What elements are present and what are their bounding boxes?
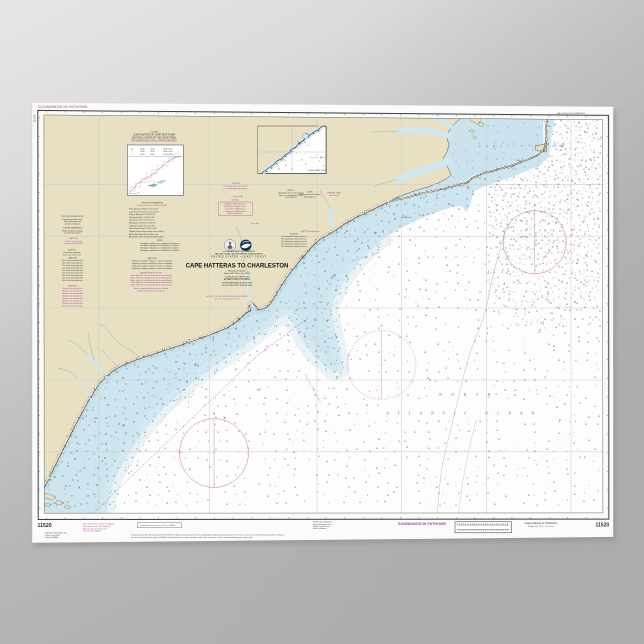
svg-text:38: 38 (378, 473, 380, 475)
svg-text:28: 28 (587, 202, 589, 204)
svg-text:10: 10 (596, 338, 598, 340)
svg-text:22: 22 (398, 441, 400, 443)
svg-text:27: 27 (353, 478, 355, 480)
svg-text:3: 3 (579, 271, 580, 273)
svg-text:North Santee Bay 4.4 4.8 0.: North Santee Bay 4.4 4.8 0.4 0.0 (129, 227, 157, 230)
svg-text:8: 8 (378, 317, 379, 319)
svg-text:9: 9 (552, 292, 553, 294)
svg-text:5: 5 (458, 361, 459, 363)
svg-text:60: 60 (584, 307, 586, 309)
svg-text:6: 6 (537, 394, 538, 396)
svg-text:50: 50 (544, 236, 546, 238)
svg-text:54: 54 (548, 473, 550, 475)
svg-text:5: 5 (335, 432, 336, 434)
svg-text:40: 40 (515, 241, 517, 243)
svg-text:44: 44 (117, 494, 119, 496)
svg-text:60: 60 (394, 465, 396, 467)
svg-text:63: 63 (206, 460, 208, 462)
svg-text:POLLUTION REPORTS: POLLUTION REPORTS (62, 216, 84, 218)
svg-text:53: 53 (531, 264, 533, 266)
svg-text:43: 43 (226, 461, 228, 463)
svg-text:14: 14 (296, 495, 298, 497)
svg-text:4: 4 (465, 290, 466, 292)
svg-text:UNITED STATES — EAST COAST: UNITED STATES — EAST COAST (211, 256, 267, 259)
svg-text:56: 56 (287, 350, 289, 352)
svg-text:51: 51 (189, 493, 191, 495)
svg-text:P A M L I C O S O U N D: P A M L I C O S O U N D (478, 144, 564, 148)
svg-text:70: 70 (287, 325, 289, 327)
svg-text:20: 20 (528, 213, 530, 215)
svg-text:42: 42 (535, 233, 537, 235)
svg-text:13: 13 (559, 202, 561, 204)
svg-text:NOTE A: NOTE A (231, 199, 239, 202)
svg-text:Navigation regulations are pub: Navigation regulations are published in … (140, 249, 179, 252)
svg-text:77: 77 (597, 491, 599, 493)
svg-text:33: 33 (415, 326, 417, 328)
svg-text:5: 5 (563, 381, 564, 383)
svg-text:5: 5 (407, 361, 408, 363)
svg-text:5: 5 (567, 250, 568, 252)
svg-text:61: 61 (583, 501, 585, 503)
svg-text:38: 38 (428, 432, 430, 434)
svg-text:79: 79 (406, 457, 408, 459)
svg-text:26: 26 (576, 280, 578, 282)
svg-text:33: 33 (366, 405, 368, 407)
svg-text:25: 25 (526, 237, 528, 239)
svg-text:6: 6 (513, 316, 514, 318)
svg-text:17: 17 (510, 197, 512, 199)
svg-text:30: 30 (419, 227, 421, 229)
svg-text:55: 55 (325, 369, 327, 371)
svg-text:6: 6 (486, 254, 487, 256)
svg-text:47: 47 (464, 219, 466, 221)
svg-text:27: 27 (404, 297, 406, 299)
svg-text:48: 48 (524, 424, 526, 426)
svg-text:44: 44 (552, 134, 554, 136)
svg-text:23: 23 (588, 296, 590, 298)
svg-text:33: 33 (571, 273, 573, 275)
svg-text:6: 6 (488, 271, 489, 273)
svg-text:73: 73 (369, 451, 371, 453)
svg-text:68: 68 (424, 352, 426, 354)
svg-text:9: 9 (436, 229, 437, 231)
svg-text:4: 4 (589, 239, 590, 241)
svg-text:3: 3 (584, 247, 585, 249)
svg-text:79: 79 (408, 372, 410, 374)
svg-text:9: 9 (354, 424, 355, 426)
svg-text:18: 18 (444, 443, 446, 445)
svg-text:37: 37 (435, 329, 437, 331)
svg-text:11: 11 (426, 219, 428, 221)
svg-text:3: 3 (296, 377, 297, 379)
svg-text:36: 36 (406, 447, 408, 449)
svg-text:63: 63 (205, 397, 207, 399)
svg-text:79: 79 (519, 283, 521, 285)
svg-text:58: 58 (597, 281, 599, 283)
svg-text:5: 5 (598, 290, 599, 292)
svg-text:49: 49 (558, 360, 560, 362)
svg-text:8: 8 (124, 503, 125, 505)
svg-text:73: 73 (477, 320, 479, 322)
svg-text:50: 50 (528, 312, 530, 314)
svg-text:36: 36 (558, 308, 560, 310)
svg-text:7: 7 (567, 223, 568, 225)
svg-text:Compiled from surveys by NOS a: Compiled from surveys by NOS and USACE (140, 524, 176, 527)
svg-text:16: 16 (593, 500, 595, 502)
svg-text:2: 2 (499, 257, 500, 259)
svg-text:37: 37 (552, 247, 554, 249)
svg-text:44: 44 (588, 417, 590, 419)
svg-text:5: 5 (188, 407, 189, 409)
svg-text:20: 20 (564, 201, 566, 203)
svg-text:Radar reflectors have been pla: Radar reflectors have been placed on man… (130, 284, 171, 287)
svg-text:29: 29 (364, 460, 366, 462)
svg-text:by limiting lines: by limiting lines (304, 195, 316, 198)
svg-text:2: 2 (348, 324, 349, 326)
svg-text:5: 5 (558, 150, 559, 152)
svg-text:32: 32 (533, 424, 535, 426)
svg-text:6: 6 (267, 421, 268, 423)
svg-text:6: 6 (315, 405, 316, 407)
svg-text:6: 6 (465, 256, 466, 258)
svg-text:75: 75 (426, 423, 428, 425)
svg-text:70: 70 (589, 292, 591, 294)
svg-text:2: 2 (385, 459, 386, 461)
svg-text:24: 24 (499, 187, 501, 189)
svg-text:41: 41 (575, 360, 577, 362)
svg-text:79: 79 (586, 125, 588, 127)
svg-text:46: 46 (522, 236, 524, 238)
svg-text:48: 48 (499, 243, 501, 245)
svg-text:50: 50 (396, 487, 398, 489)
svg-text:14: 14 (549, 156, 551, 158)
svg-text:35: 35 (396, 231, 398, 233)
svg-text:19: 19 (515, 313, 517, 315)
svg-text:19: 19 (544, 500, 546, 502)
svg-text:23: 23 (337, 407, 339, 409)
svg-text:4: 4 (522, 319, 523, 321)
svg-text:71: 71 (393, 355, 395, 357)
svg-text:78: 78 (364, 332, 366, 334)
svg-text:58: 58 (580, 165, 582, 167)
svg-text:13: 13 (447, 378, 449, 380)
svg-text:8: 8 (166, 434, 167, 436)
svg-text:Little River Inlet 4.6 5.0: Little River Inlet 4.6 5.0 0.5 0.0 (129, 224, 155, 227)
svg-text:75: 75 (484, 264, 486, 266)
svg-text:6: 6 (525, 186, 526, 188)
svg-text:6: 6 (448, 219, 449, 221)
svg-text:47: 47 (588, 169, 590, 171)
svg-text:27: 27 (366, 355, 368, 357)
svg-text:50: 50 (545, 287, 547, 289)
svg-text:58: 58 (560, 167, 562, 169)
svg-text:11: 11 (509, 245, 511, 247)
svg-text:58: 58 (547, 294, 549, 296)
svg-text:72: 72 (437, 448, 439, 450)
svg-text:29: 29 (540, 212, 542, 214)
svg-text:Winyah Bay Ent 3.5 3.8 0.3: Winyah Bay Ent 3.5 3.8 0.3 0.0 (129, 213, 155, 216)
svg-text:6: 6 (444, 503, 445, 505)
svg-text:14: 14 (496, 430, 498, 432)
svg-text:9: 9 (527, 476, 528, 478)
svg-text:13: 13 (249, 398, 251, 400)
svg-text:12: 12 (275, 451, 277, 453)
svg-text:41: 41 (559, 231, 561, 233)
svg-text:40: 40 (567, 195, 569, 197)
svg-text:34: 34 (560, 316, 562, 318)
svg-text:38: 38 (146, 487, 148, 489)
svg-text:8: 8 (317, 492, 318, 494)
svg-text:36: 36 (475, 456, 477, 458)
svg-text:23: 23 (305, 164, 307, 166)
svg-text:68: 68 (425, 290, 427, 292)
svg-text:38: 38 (503, 284, 505, 286)
svg-text:11: 11 (568, 164, 570, 166)
svg-text:12: 12 (196, 502, 198, 504)
svg-text:50: 50 (256, 351, 258, 353)
svg-text:7: 7 (487, 420, 488, 422)
svg-text:49: 49 (166, 503, 168, 505)
svg-text:6: 6 (516, 200, 517, 202)
svg-text:8: 8 (307, 145, 308, 147)
svg-text:6: 6 (244, 478, 245, 480)
svg-text:58: 58 (546, 449, 548, 451)
svg-text:51: 51 (573, 229, 575, 231)
svg-text:35: 35 (378, 352, 380, 354)
svg-text:45: 45 (284, 459, 286, 461)
svg-text:7: 7 (125, 467, 126, 469)
svg-text:6: 6 (369, 391, 370, 393)
svg-text:36: 36 (553, 346, 555, 348)
svg-text:48: 48 (576, 263, 578, 265)
svg-text:28: 28 (425, 280, 427, 282)
svg-text:46: 46 (525, 230, 527, 232)
svg-text:32: 32 (397, 371, 399, 373)
svg-text:49: 49 (534, 380, 536, 382)
svg-text:2: 2 (507, 220, 508, 222)
svg-text:28: 28 (578, 337, 580, 339)
svg-text:9: 9 (268, 387, 269, 389)
svg-text:40: 40 (365, 482, 367, 484)
svg-text:56: 56 (419, 289, 421, 291)
svg-text:49: 49 (556, 160, 558, 162)
svg-text:41: 41 (537, 166, 539, 168)
svg-text:28: 28 (554, 491, 556, 493)
svg-text:27: 27 (492, 226, 494, 228)
svg-text:68: 68 (438, 307, 440, 309)
svg-text:49: 49 (148, 441, 150, 443)
svg-text:47: 47 (266, 346, 268, 348)
svg-text:57: 57 (591, 209, 593, 211)
svg-text:36: 36 (393, 492, 395, 494)
svg-text:23: 23 (544, 377, 546, 379)
svg-text:8: 8 (577, 236, 578, 238)
svg-text:57: 57 (498, 286, 500, 288)
svg-text:14: 14 (533, 302, 535, 304)
svg-text:46: 46 (565, 293, 567, 295)
svg-text:6: 6 (572, 234, 573, 236)
svg-text:74: 74 (458, 493, 460, 495)
svg-text:36: 36 (597, 157, 599, 159)
svg-text:51: 51 (174, 475, 176, 477)
svg-text:67: 67 (593, 152, 595, 154)
svg-text:CAUTION: CAUTION (68, 256, 78, 259)
svg-text:62: 62 (447, 484, 449, 486)
svg-text:6: 6 (576, 232, 577, 234)
svg-text:56: 56 (576, 199, 578, 201)
svg-text:8: 8 (317, 449, 318, 451)
svg-text:51: 51 (546, 404, 548, 406)
svg-text:23: 23 (535, 186, 537, 188)
svg-text:50: 50 (540, 323, 542, 325)
svg-text:Masonboro Inlet 3.8 4.2 0.4: Masonboro Inlet 3.8 4.2 0.4 0.0 (129, 222, 155, 225)
svg-text:5: 5 (177, 450, 178, 452)
svg-text:39: 39 (580, 282, 582, 284)
svg-text:20: 20 (564, 310, 566, 312)
svg-text:36: 36 (358, 300, 360, 302)
svg-text:31: 31 (363, 442, 365, 444)
svg-text:18: 18 (284, 422, 286, 424)
svg-text:All heights referred to MLLW d: All heights referred to MLLW datum plane (129, 236, 164, 239)
svg-text:3: 3 (554, 213, 555, 215)
svg-text:45: 45 (583, 169, 585, 171)
svg-text:21: 21 (286, 449, 288, 451)
svg-text:12: 12 (589, 317, 591, 319)
svg-text:43: 43 (597, 179, 599, 181)
svg-text:Scale 1:432,720 at Lat. 33°52': Scale 1:432,720 at Lat. 33°52' (224, 272, 251, 275)
svg-text:53: 53 (287, 465, 289, 467)
svg-text:79: 79 (265, 414, 267, 416)
svg-text:62: 62 (585, 161, 587, 163)
svg-text:8: 8 (477, 369, 478, 371)
svg-text:3: 3 (428, 459, 429, 461)
svg-text:13: 13 (455, 245, 457, 247)
svg-text:3: 3 (567, 500, 568, 502)
svg-text:28: 28 (264, 398, 266, 400)
svg-text:79: 79 (385, 372, 387, 374)
svg-text:25: 25 (145, 450, 147, 452)
svg-text:11: 11 (445, 429, 447, 431)
svg-text:37: 37 (285, 379, 287, 381)
svg-text:43: 43 (595, 262, 597, 264)
svg-text:Parts 220-229: Parts 220-229 (285, 196, 296, 199)
svg-text:55: 55 (513, 239, 515, 241)
svg-text:67: 67 (469, 500, 471, 502)
svg-text:78: 78 (577, 327, 579, 329)
svg-text:13: 13 (501, 264, 503, 266)
svg-text:30: 30 (475, 310, 477, 312)
svg-text:45: 45 (521, 301, 523, 303)
svg-text:15: 15 (507, 202, 509, 204)
svg-text:4: 4 (546, 264, 547, 266)
svg-text:6: 6 (457, 381, 458, 383)
svg-text:36: 36 (599, 326, 601, 328)
svg-text:7: 7 (589, 281, 590, 283)
svg-text:11: 11 (485, 341, 487, 343)
svg-text:19: 19 (550, 303, 552, 305)
svg-text:5: 5 (548, 467, 549, 469)
svg-text:consult U.S. Coast Guard Light: consult U.S. Coast Guard Light List (137, 289, 166, 292)
svg-text:31: 31 (576, 310, 578, 312)
svg-text:59: 59 (496, 381, 498, 383)
svg-text:8: 8 (435, 381, 436, 383)
svg-text:40: 40 (593, 219, 595, 221)
svg-text:11542: 11542 (140, 154, 145, 156)
svg-text:48: 48 (488, 451, 490, 453)
svg-text:51: 51 (558, 184, 560, 186)
svg-text:48: 48 (446, 265, 448, 267)
svg-text:10: 10 (490, 248, 492, 250)
svg-text:2: 2 (208, 441, 209, 443)
svg-text:8: 8 (319, 161, 320, 163)
svg-text:25: 25 (491, 201, 493, 203)
svg-text:65: 65 (553, 482, 555, 484)
svg-text:6: 6 (455, 227, 456, 229)
svg-text:5: 5 (593, 461, 594, 463)
svg-text:48: 48 (317, 412, 319, 414)
svg-text:48: 48 (136, 465, 138, 467)
svg-text:78: 78 (225, 406, 227, 408)
svg-text:35: 35 (532, 197, 534, 199)
svg-text:3: 3 (558, 505, 559, 507)
svg-text:7: 7 (179, 466, 180, 468)
svg-text:38: 38 (566, 132, 568, 134)
svg-text:72: 72 (528, 458, 530, 460)
svg-text:28: 28 (571, 181, 573, 183)
svg-text:5: 5 (525, 245, 526, 247)
svg-text:18: 18 (510, 239, 512, 241)
svg-text:56: 56 (436, 284, 438, 286)
svg-text:49: 49 (555, 327, 557, 329)
svg-text:52: 52 (514, 188, 516, 190)
svg-text:17: 17 (532, 249, 534, 251)
svg-text:29: 29 (504, 306, 506, 308)
svg-text:11535: 11535 (150, 148, 155, 150)
svg-text:46: 46 (488, 194, 490, 196)
svg-text:75: 75 (226, 430, 228, 432)
svg-text:47: 47 (537, 259, 539, 261)
svg-text:70: 70 (595, 240, 597, 242)
svg-text:72: 72 (447, 459, 449, 461)
svg-text:3: 3 (304, 501, 305, 503)
svg-text:77: 77 (197, 458, 199, 460)
svg-text:21: 21 (459, 239, 461, 241)
svg-text:66: 66 (376, 468, 378, 470)
svg-text:52: 52 (318, 456, 320, 458)
svg-text:13: 13 (492, 235, 494, 237)
svg-text:22: 22 (525, 325, 527, 327)
svg-text:77: 77 (426, 469, 428, 471)
svg-text:10: 10 (456, 354, 458, 356)
svg-text:36: 36 (548, 344, 550, 346)
svg-text:11540 11541: 11540 11541 (163, 151, 173, 153)
svg-text:7: 7 (258, 373, 259, 375)
svg-text:32: 32 (258, 484, 260, 486)
svg-text:2: 2 (388, 315, 389, 317)
svg-text:4: 4 (295, 458, 296, 460)
svg-text:4: 4 (457, 425, 458, 427)
svg-text:78: 78 (294, 487, 296, 489)
svg-text:14: 14 (553, 241, 555, 243)
svg-text:6: 6 (346, 496, 347, 498)
svg-text:37: 37 (554, 260, 556, 262)
svg-text:32: 32 (287, 434, 289, 436)
svg-text:53: 53 (566, 304, 568, 306)
svg-text:25: 25 (489, 233, 491, 235)
svg-text:9: 9 (533, 484, 534, 486)
svg-text:76: 76 (359, 359, 361, 361)
svg-text:9: 9 (475, 430, 476, 432)
